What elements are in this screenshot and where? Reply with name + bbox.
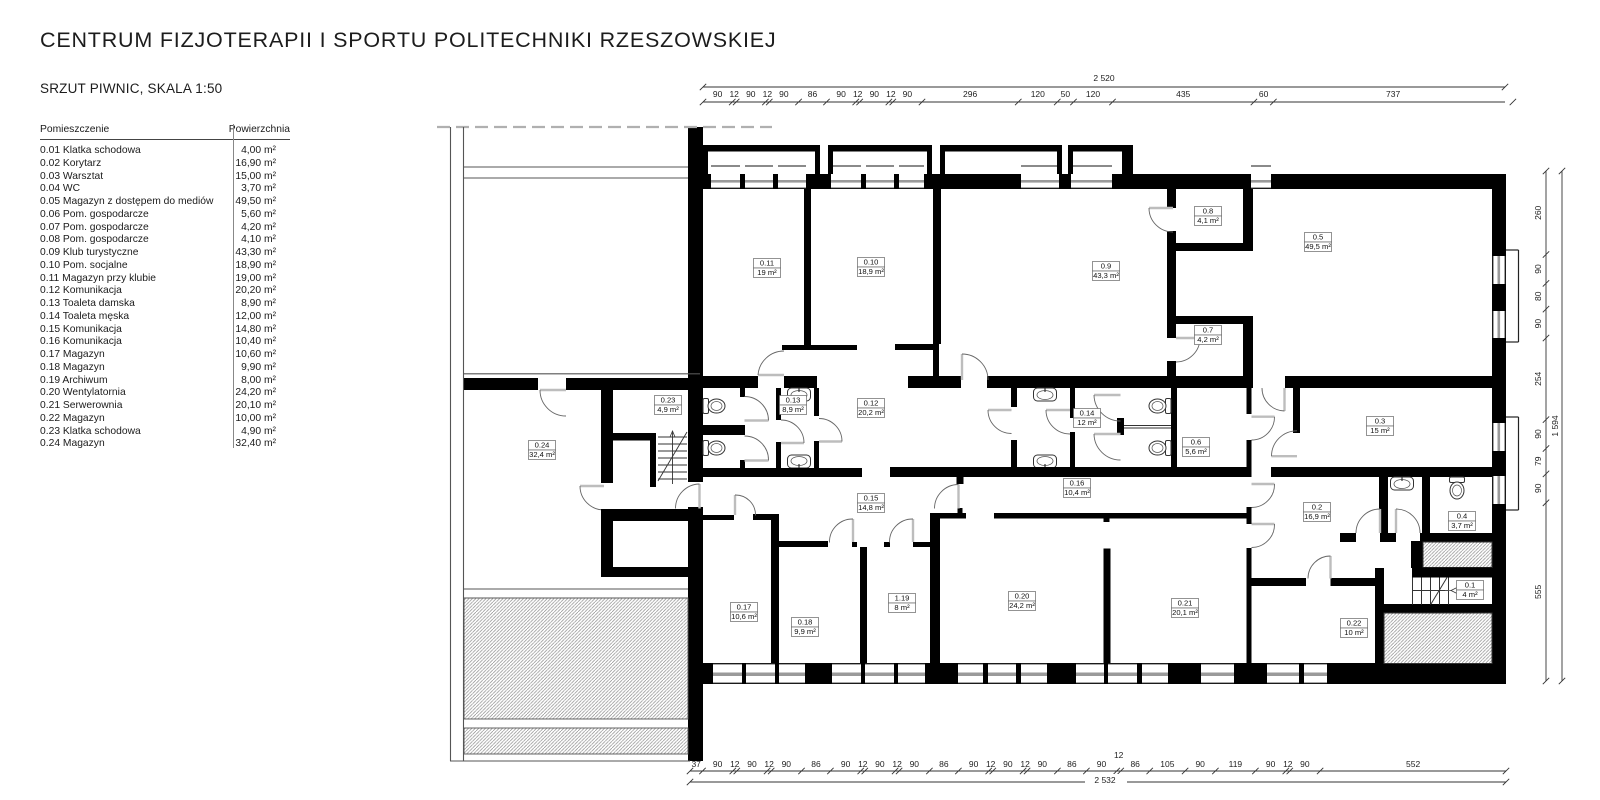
svg-text:90: 90 bbox=[1533, 483, 1543, 493]
svg-text:0.3: 0.3 bbox=[1375, 417, 1386, 426]
svg-text:12: 12 bbox=[1114, 750, 1124, 760]
svg-text:43,3 m²: 43,3 m² bbox=[1093, 271, 1119, 280]
svg-text:86: 86 bbox=[939, 759, 949, 769]
svg-text:90: 90 bbox=[841, 759, 851, 769]
svg-text:90: 90 bbox=[1038, 759, 1048, 769]
svg-text:90: 90 bbox=[779, 89, 789, 99]
svg-text:5,6 m²: 5,6 m² bbox=[1185, 447, 1207, 456]
svg-text:32,4 m²: 32,4 m² bbox=[529, 450, 555, 459]
svg-text:0.15: 0.15 bbox=[864, 494, 879, 503]
svg-text:0.2: 0.2 bbox=[1312, 503, 1323, 512]
svg-text:90: 90 bbox=[1195, 759, 1205, 769]
svg-text:60: 60 bbox=[1259, 89, 1269, 99]
svg-text:0.18: 0.18 bbox=[798, 618, 813, 627]
svg-text:20,1 m²: 20,1 m² bbox=[1172, 608, 1198, 617]
svg-text:3,7 m²: 3,7 m² bbox=[1451, 521, 1473, 530]
svg-text:12: 12 bbox=[730, 759, 740, 769]
svg-text:12: 12 bbox=[1283, 759, 1293, 769]
svg-text:435: 435 bbox=[1176, 89, 1190, 99]
svg-text:2 532: 2 532 bbox=[1094, 775, 1116, 785]
svg-text:9,9 m²: 9,9 m² bbox=[794, 627, 816, 636]
svg-text:4,9 m²: 4,9 m² bbox=[657, 405, 679, 414]
svg-text:90: 90 bbox=[836, 89, 846, 99]
svg-text:0.4: 0.4 bbox=[1457, 512, 1468, 521]
svg-text:90: 90 bbox=[1533, 264, 1543, 274]
svg-text:90: 90 bbox=[1533, 429, 1543, 439]
svg-text:1.19: 1.19 bbox=[895, 594, 910, 603]
svg-text:86: 86 bbox=[811, 759, 821, 769]
svg-text:12: 12 bbox=[763, 89, 773, 99]
svg-text:10,6 m²: 10,6 m² bbox=[731, 612, 757, 621]
svg-text:10,4 m²: 10,4 m² bbox=[1064, 488, 1090, 497]
svg-text:90: 90 bbox=[870, 89, 880, 99]
svg-text:0.10: 0.10 bbox=[864, 258, 879, 267]
svg-text:4,1 m²: 4,1 m² bbox=[1197, 216, 1219, 225]
svg-text:12: 12 bbox=[986, 759, 996, 769]
svg-text:0.13: 0.13 bbox=[786, 396, 801, 405]
svg-text:79: 79 bbox=[1533, 456, 1543, 466]
svg-text:80: 80 bbox=[1533, 291, 1543, 301]
svg-text:50: 50 bbox=[1061, 89, 1071, 99]
svg-text:86: 86 bbox=[808, 89, 818, 99]
svg-text:0.1: 0.1 bbox=[1465, 581, 1476, 590]
svg-text:12: 12 bbox=[1020, 759, 1030, 769]
svg-text:0.23: 0.23 bbox=[661, 396, 676, 405]
svg-text:90: 90 bbox=[782, 759, 792, 769]
svg-text:12: 12 bbox=[858, 759, 868, 769]
svg-text:18,9 m²: 18,9 m² bbox=[858, 267, 884, 276]
svg-text:105: 105 bbox=[1160, 759, 1174, 769]
svg-text:90: 90 bbox=[746, 89, 756, 99]
svg-text:120: 120 bbox=[1031, 89, 1045, 99]
svg-text:86: 86 bbox=[1067, 759, 1077, 769]
svg-text:2 520: 2 520 bbox=[1093, 73, 1115, 83]
svg-text:90: 90 bbox=[747, 759, 757, 769]
svg-text:90: 90 bbox=[969, 759, 979, 769]
svg-text:0.12: 0.12 bbox=[864, 399, 879, 408]
svg-text:90: 90 bbox=[910, 759, 920, 769]
svg-text:0.21: 0.21 bbox=[1178, 599, 1193, 608]
svg-text:24,2 m²: 24,2 m² bbox=[1009, 601, 1035, 610]
svg-text:0.5: 0.5 bbox=[1313, 233, 1324, 242]
svg-text:0.7: 0.7 bbox=[1203, 326, 1214, 335]
svg-text:14,8 m²: 14,8 m² bbox=[858, 503, 884, 512]
svg-text:4 m²: 4 m² bbox=[1462, 590, 1478, 599]
svg-text:0.14: 0.14 bbox=[1080, 409, 1095, 418]
svg-text:90: 90 bbox=[713, 89, 723, 99]
svg-text:20,2 m²: 20,2 m² bbox=[858, 408, 884, 417]
svg-text:1 594: 1 594 bbox=[1550, 415, 1560, 437]
svg-text:90: 90 bbox=[1003, 759, 1013, 769]
svg-text:90: 90 bbox=[903, 89, 913, 99]
svg-text:12 m²: 12 m² bbox=[1077, 418, 1097, 427]
svg-text:296: 296 bbox=[963, 89, 977, 99]
svg-text:0.24: 0.24 bbox=[535, 441, 550, 450]
svg-text:10 m²: 10 m² bbox=[1344, 628, 1364, 637]
svg-text:0.11: 0.11 bbox=[760, 259, 774, 268]
svg-text:12: 12 bbox=[764, 759, 774, 769]
svg-text:90: 90 bbox=[875, 759, 885, 769]
svg-text:12: 12 bbox=[886, 89, 896, 99]
svg-text:19 m²: 19 m² bbox=[757, 268, 777, 277]
svg-text:90: 90 bbox=[713, 759, 723, 769]
svg-text:552: 552 bbox=[1406, 759, 1420, 769]
svg-text:49,5 m²: 49,5 m² bbox=[1305, 242, 1331, 251]
svg-text:8,9 m²: 8,9 m² bbox=[782, 405, 804, 414]
svg-text:0.9: 0.9 bbox=[1101, 262, 1112, 271]
svg-text:12: 12 bbox=[853, 89, 863, 99]
svg-text:737: 737 bbox=[1386, 89, 1400, 99]
svg-text:90: 90 bbox=[1533, 319, 1543, 329]
svg-text:4,2 m²: 4,2 m² bbox=[1197, 335, 1219, 344]
svg-text:90: 90 bbox=[1097, 759, 1107, 769]
svg-text:12: 12 bbox=[892, 759, 902, 769]
svg-text:254: 254 bbox=[1533, 371, 1543, 385]
svg-text:12: 12 bbox=[729, 89, 739, 99]
svg-text:15 m²: 15 m² bbox=[1370, 426, 1390, 435]
svg-text:555: 555 bbox=[1533, 585, 1543, 599]
svg-text:119: 119 bbox=[1229, 759, 1243, 769]
svg-text:90: 90 bbox=[1266, 759, 1276, 769]
svg-text:120: 120 bbox=[1086, 89, 1100, 99]
svg-text:0.20: 0.20 bbox=[1015, 592, 1030, 601]
svg-text:0.17: 0.17 bbox=[737, 603, 752, 612]
svg-text:86: 86 bbox=[1130, 759, 1140, 769]
svg-text:260: 260 bbox=[1533, 205, 1543, 219]
svg-text:90: 90 bbox=[1300, 759, 1310, 769]
svg-text:37: 37 bbox=[691, 759, 701, 769]
svg-text:16,9 m²: 16,9 m² bbox=[1304, 512, 1330, 521]
svg-text:8 m²: 8 m² bbox=[894, 603, 910, 612]
svg-text:0.6: 0.6 bbox=[1191, 438, 1202, 447]
svg-text:0.8: 0.8 bbox=[1203, 207, 1214, 216]
svg-text:0.16: 0.16 bbox=[1070, 479, 1085, 488]
svg-text:0.22: 0.22 bbox=[1347, 619, 1362, 628]
